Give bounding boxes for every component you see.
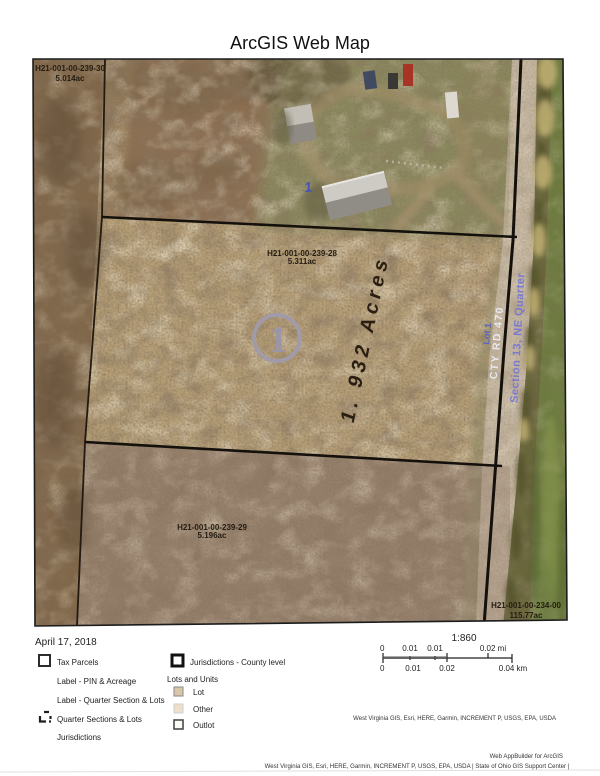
svg-text:April 17, 2018: April 17, 2018 bbox=[35, 637, 97, 648]
svg-text:1:860: 1:860 bbox=[451, 633, 476, 644]
svg-text:0: 0 bbox=[380, 644, 385, 653]
svg-text:0.02: 0.02 bbox=[439, 664, 455, 673]
svg-text:Jurisdictions: Jurisdictions bbox=[57, 733, 101, 742]
svg-text:Lots and Units: Lots and Units bbox=[167, 675, 218, 684]
svg-text:0.02 mi: 0.02 mi bbox=[480, 644, 506, 653]
svg-text:Tax Parcels: Tax Parcels bbox=[57, 658, 98, 667]
svg-text:H21-001-00-239-30: H21-001-00-239-30 bbox=[35, 64, 105, 73]
svg-text:5.196ac: 5.196ac bbox=[198, 531, 227, 540]
svg-text:ArcGIS Web Map: ArcGIS Web Map bbox=[230, 33, 370, 53]
svg-text:Lot 1: Lot 1 bbox=[481, 323, 493, 345]
svg-text:0.01: 0.01 bbox=[427, 644, 443, 653]
svg-text:0.01: 0.01 bbox=[405, 664, 421, 673]
svg-text:Label - PIN & Acreage: Label - PIN & Acreage bbox=[57, 677, 137, 686]
svg-text:Outlot: Outlot bbox=[193, 721, 215, 730]
svg-text:115.77ac: 115.77ac bbox=[510, 611, 543, 620]
svg-text:5.311ac: 5.311ac bbox=[288, 257, 317, 266]
svg-text:0.04 km: 0.04 km bbox=[499, 664, 528, 673]
svg-text:Other: Other bbox=[193, 705, 213, 714]
svg-text:1: 1 bbox=[269, 319, 288, 361]
svg-text:5.014ac: 5.014ac bbox=[56, 74, 85, 83]
svg-text:Quarter Sections & Lots: Quarter Sections & Lots bbox=[57, 715, 142, 724]
svg-text:Label - Quarter Section & Lots: Label - Quarter Section & Lots bbox=[57, 696, 165, 705]
svg-text:H21-001-00-234-00: H21-001-00-234-00 bbox=[491, 601, 561, 610]
svg-text:West Virginia GIS, Esri, HERE,: West Virginia GIS, Esri, HERE, Garmin, I… bbox=[265, 763, 570, 770]
svg-text:0: 0 bbox=[380, 664, 385, 673]
svg-text:Jurisdictions - County level: Jurisdictions - County level bbox=[190, 658, 285, 667]
svg-text:Web AppBuilder for ArcGIS: Web AppBuilder for ArcGIS bbox=[490, 753, 563, 760]
svg-text:0.01: 0.01 bbox=[402, 644, 418, 653]
svg-text:West Virginia GIS, Esri, HERE,: West Virginia GIS, Esri, HERE, Garmin, I… bbox=[353, 716, 556, 722]
svg-text:Lot: Lot bbox=[193, 688, 205, 697]
